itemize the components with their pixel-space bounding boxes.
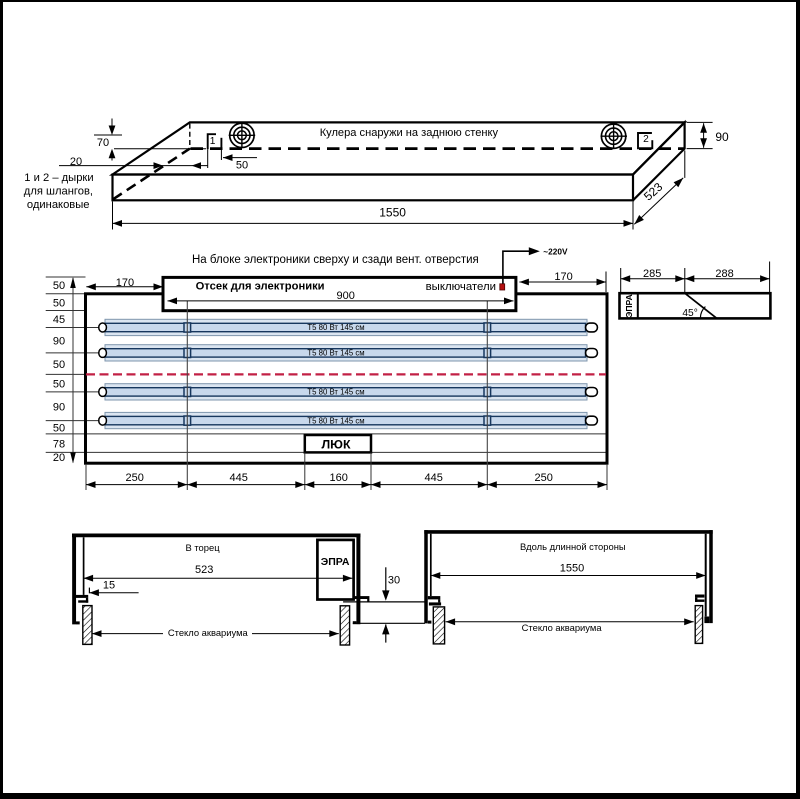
svg-text:250: 250 [535,472,553,484]
svg-text:1550: 1550 [379,206,406,220]
svg-text:15: 15 [103,580,115,592]
svg-text:30: 30 [388,575,400,587]
svg-text:250: 250 [126,472,144,484]
svg-text:Отсек для электроники: Отсек для электроники [196,281,325,293]
svg-text:45: 45 [53,314,65,326]
svg-text:выключатели: выключатели [426,281,496,293]
svg-text:90: 90 [53,335,65,347]
svg-text:50: 50 [236,160,248,172]
svg-text:285: 285 [643,268,661,280]
svg-text:50: 50 [53,359,65,371]
svg-text:Кулера снаружи на заднюю стенк: Кулера снаружи на заднюю стенку [320,127,499,139]
svg-text:ЭПРА: ЭПРА [624,294,634,317]
svg-text:50: 50 [53,280,65,292]
svg-text:В торец: В торец [186,542,221,553]
svg-text:900: 900 [337,290,355,302]
svg-text:90: 90 [53,401,65,413]
svg-text:Вдоль длинной стороны: Вдоль длинной стороны [520,541,626,552]
svg-text:Стекло аквариума: Стекло аквариума [168,627,249,638]
svg-text:Т5 80 Вт 145 см: Т5 80 Вт 145 см [307,416,364,425]
svg-text:одинаковые: одинаковые [27,199,90,211]
svg-text:ЛЮК: ЛЮК [321,437,350,451]
svg-text:1: 1 [210,136,216,147]
svg-text:170: 170 [554,271,572,283]
svg-text:70: 70 [97,137,109,149]
svg-text:288: 288 [715,268,733,280]
svg-text:1550: 1550 [560,562,584,574]
svg-text:50: 50 [53,422,65,434]
svg-text:445: 445 [230,472,248,484]
svg-text:~220V: ~220V [543,246,568,256]
svg-text:для шлангов,: для шлангов, [24,186,93,198]
svg-text:На блоке электроники сверху и: На блоке электроники сверху и сзади вент… [192,254,479,266]
svg-text:90: 90 [715,130,729,144]
svg-text:2: 2 [643,134,649,145]
svg-text:Стекло аквариума: Стекло аквариума [522,622,603,633]
svg-text:45°: 45° [682,308,697,319]
svg-text:160: 160 [330,472,348,484]
svg-text:Т5 80 Вт 145 см: Т5 80 Вт 145 см [307,349,364,358]
svg-text:445: 445 [425,472,443,484]
svg-text:ЭПРА: ЭПРА [321,556,350,568]
svg-text:1 и 2 – дырки: 1 и 2 – дырки [24,172,93,184]
svg-text:170: 170 [116,277,134,289]
svg-text:Т5 80 Вт 145 см: Т5 80 Вт 145 см [307,388,364,397]
svg-text:20: 20 [53,452,65,464]
svg-text:78: 78 [53,438,65,450]
svg-text:20: 20 [70,156,82,168]
svg-text:50: 50 [53,297,65,309]
svg-text:Т5 80 Вт 145 см: Т5 80 Вт 145 см [307,323,364,332]
svg-text:523: 523 [195,564,213,576]
svg-text:50: 50 [53,378,65,390]
